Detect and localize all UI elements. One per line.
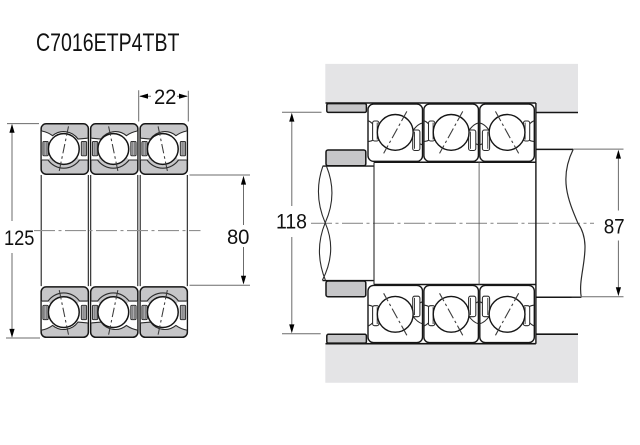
svg-text:125: 125 — [4, 227, 35, 250]
svg-text:22: 22 — [154, 86, 177, 109]
svg-text:87: 87 — [604, 214, 625, 239]
svg-text:C7016ETP4TBT: C7016ETP4TBT — [36, 29, 180, 57]
svg-text:118: 118 — [276, 210, 307, 233]
svg-text:80: 80 — [227, 226, 250, 249]
